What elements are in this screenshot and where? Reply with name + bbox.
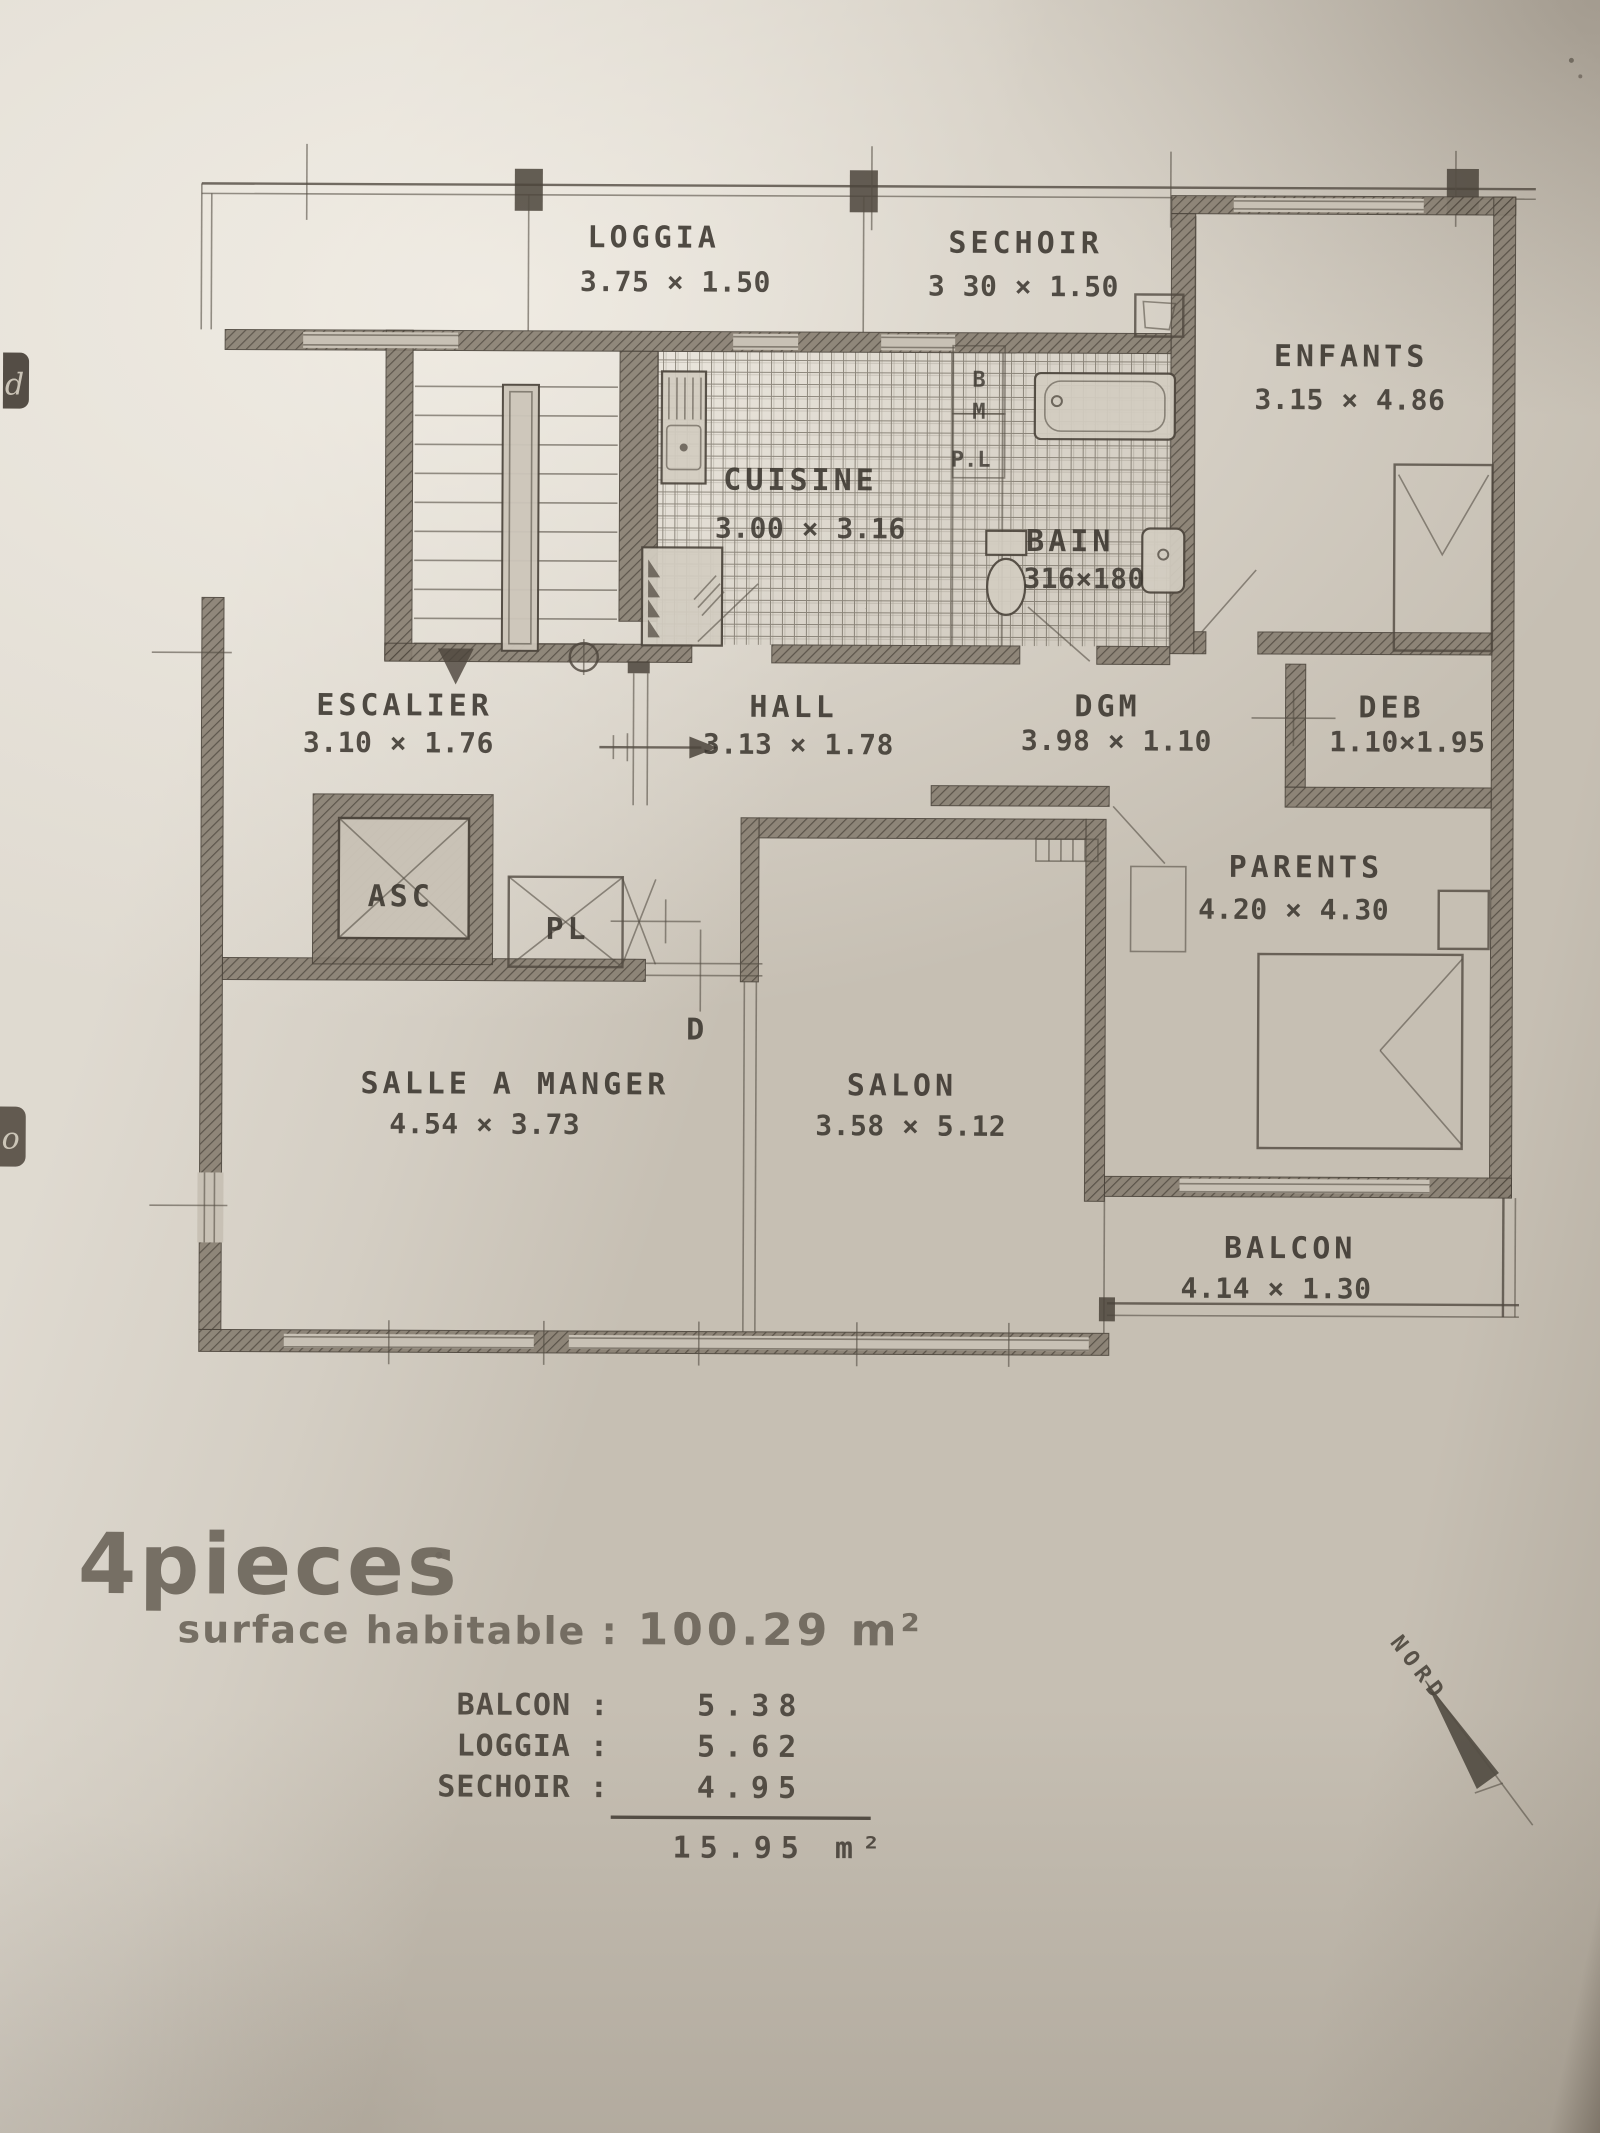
- room-dims-dgm: 3.98 × 1.10: [1021, 724, 1212, 758]
- room-label-sechoir: SECHOIR: [948, 226, 1103, 262]
- annex-total-rule: [611, 1817, 871, 1818]
- room-dims-balcon: 4.14 × 1.30: [1180, 1272, 1371, 1306]
- annex-row-label: SECHOIR :: [437, 1769, 609, 1805]
- room-dims-salle-a-manger: 4.54 × 3.73: [389, 1107, 580, 1141]
- closet-label-b: B: [972, 368, 985, 393]
- north-label: NORD: [1385, 1631, 1452, 1707]
- nightstand: [1439, 891, 1489, 949]
- closet-label-m: M: [972, 400, 985, 425]
- surface-value: 100.29 m²: [637, 1604, 923, 1656]
- surface-label: surface habitable :: [177, 1607, 618, 1653]
- room-label-parents: PARENTS: [1229, 850, 1384, 886]
- stair-stringer: [502, 385, 539, 651]
- room-dims-parents: 4.20 × 4.30: [1198, 893, 1389, 927]
- wall-segment: [1084, 819, 1106, 1201]
- staircase: [414, 384, 618, 685]
- room-dims-cuisine: 3.00 × 3.16: [715, 512, 906, 546]
- wall-segment: [1489, 197, 1515, 1197]
- top-balcony-rail: [201, 143, 1536, 335]
- edge-mark-top: d: [5, 368, 24, 403]
- wall-segment: [931, 786, 1109, 807]
- label-pl: PL: [545, 912, 589, 947]
- enfants-furniture: [1394, 465, 1493, 651]
- room-label-enfants: ENFANTS: [1274, 339, 1429, 375]
- edge-mark-bottom: o: [2, 1122, 20, 1157]
- room-dims-sechoir: 3 30 × 1.50: [928, 270, 1119, 304]
- room-dims-escalier: 3.10 × 1.76: [303, 726, 494, 760]
- toilet-bowl: [987, 559, 1025, 615]
- north-compass: NORD: [1384, 1631, 1534, 1825]
- room-label-hall: HALL: [749, 690, 837, 725]
- wall-segment: [385, 330, 413, 660]
- elevator-asc: ASC: [339, 818, 470, 939]
- wall-segment: [1285, 787, 1491, 808]
- room-label-salon: SALON: [847, 1068, 957, 1103]
- plan-title: 4pieces: [78, 1515, 461, 1615]
- room-label-escalier: ESCALIER: [316, 688, 493, 724]
- room-dims-hall: 3.13 × 1.78: [703, 728, 894, 762]
- room-label-bain: BAIN: [1026, 524, 1114, 559]
- room-label-salle-a-manger: SALLE A MANGER: [360, 1066, 669, 1102]
- closet-label-pl-small: P.L: [951, 448, 991, 473]
- room-dims-salon: 3.58 × 5.12: [815, 1109, 1006, 1143]
- north-arrow: [1425, 1681, 1499, 1789]
- annex-row-value: 5.62: [697, 1730, 805, 1765]
- label-asc: ASC: [368, 879, 434, 914]
- annex-total: 15.95 m²: [673, 1830, 890, 1866]
- wall-segment: [1285, 664, 1306, 787]
- room-dims-bain: 316×180: [1023, 562, 1145, 596]
- room-dims-enfants: 3.15 × 4.86: [1254, 383, 1445, 417]
- room-label-cuisine: CUISINE: [723, 463, 878, 499]
- entrance-arrow: [599, 733, 717, 762]
- room-dims-deb: 1.10×1.95: [1329, 725, 1485, 759]
- wardrobe: [1131, 866, 1186, 951]
- wall-segment: [740, 818, 759, 982]
- floor-plan-drawing: B M P.L ASC PL: [0, 0, 1600, 2133]
- room-label-loggia: LOGGIA: [587, 220, 720, 256]
- annex-row-label: LOGGIA :: [456, 1729, 609, 1765]
- toilet-tank: [986, 531, 1026, 555]
- annex-row-value: 4.95: [697, 1771, 805, 1806]
- wall-segment: [759, 818, 1086, 839]
- annex-row-value: 5.38: [697, 1689, 805, 1724]
- label-door-d: D: [686, 1013, 708, 1048]
- room-dims-loggia: 3.75 × 1.50: [580, 265, 771, 299]
- stair-direction-arrow: [438, 648, 474, 684]
- double-bed: [1258, 954, 1463, 1149]
- floor-plan-photo: B M P.L ASC PL: [0, 0, 1600, 2133]
- summary-block: 4pieces surface habitable : 100.29 m²: [77, 1515, 924, 1657]
- room-label-deb: DEB: [1358, 690, 1424, 725]
- room-label-balcon: BALCON: [1224, 1231, 1357, 1267]
- wall-segment: [772, 645, 1020, 664]
- room-label-dgm: DGM: [1074, 689, 1140, 724]
- hall-door-leaf: [627, 661, 650, 805]
- annex-row-label: BALCON :: [457, 1688, 610, 1724]
- wall-segment: [1194, 632, 1206, 654]
- closet-pl: PL: [508, 877, 700, 968]
- wall-segment: [1097, 646, 1170, 664]
- annex-table: BALCON : 5.38 LOGGIA : 5.62 SECHOIR : 4.…: [437, 1687, 890, 1866]
